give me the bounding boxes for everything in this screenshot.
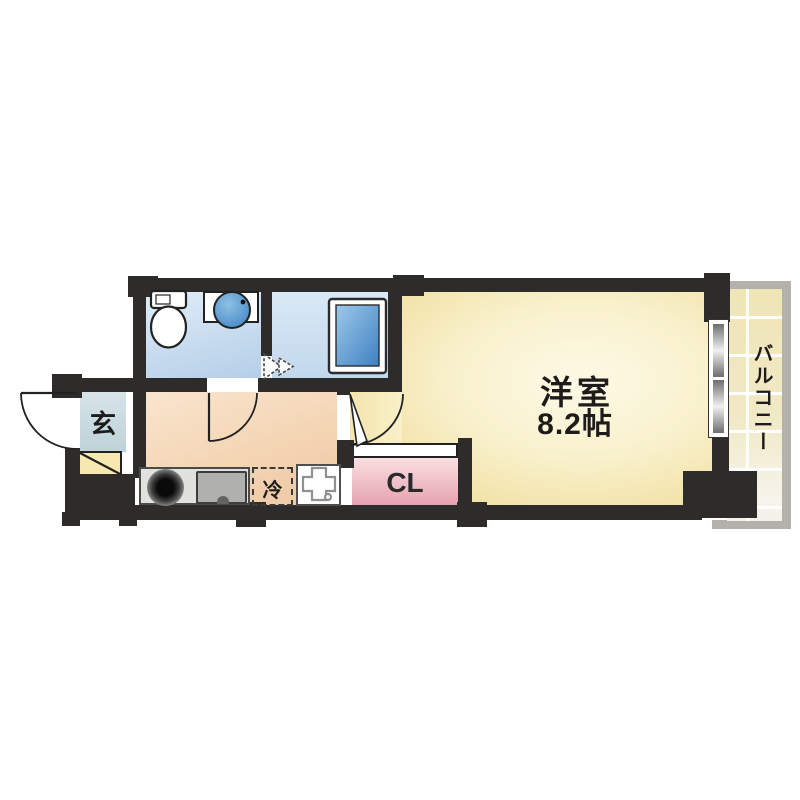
floorplan-canvas: 玄 冷 CL 洋室 8.2帖 バルコニー (0, 0, 800, 800)
bath-folding-door-icon (264, 354, 293, 379)
balcony-label: バルコニー (752, 328, 776, 468)
shoe-cabinet-diagonal (80, 453, 120, 474)
washroom-door-swing (209, 393, 257, 441)
main-room-door-swing (350, 394, 403, 446)
entrance-label: 玄 (78, 404, 128, 441)
refrigerator-label: 冷 (252, 474, 293, 503)
fixtures-overlay (0, 0, 800, 800)
main-room-size-label: 8.2帖 (475, 399, 675, 443)
entrance-door-swing (21, 393, 77, 449)
closet-label: CL (352, 467, 458, 499)
bathtub-icon (329, 299, 386, 373)
laundry-pan-drain-icon (303, 468, 335, 500)
wash-basin-icon (204, 292, 258, 328)
toilet-icon (151, 291, 186, 348)
